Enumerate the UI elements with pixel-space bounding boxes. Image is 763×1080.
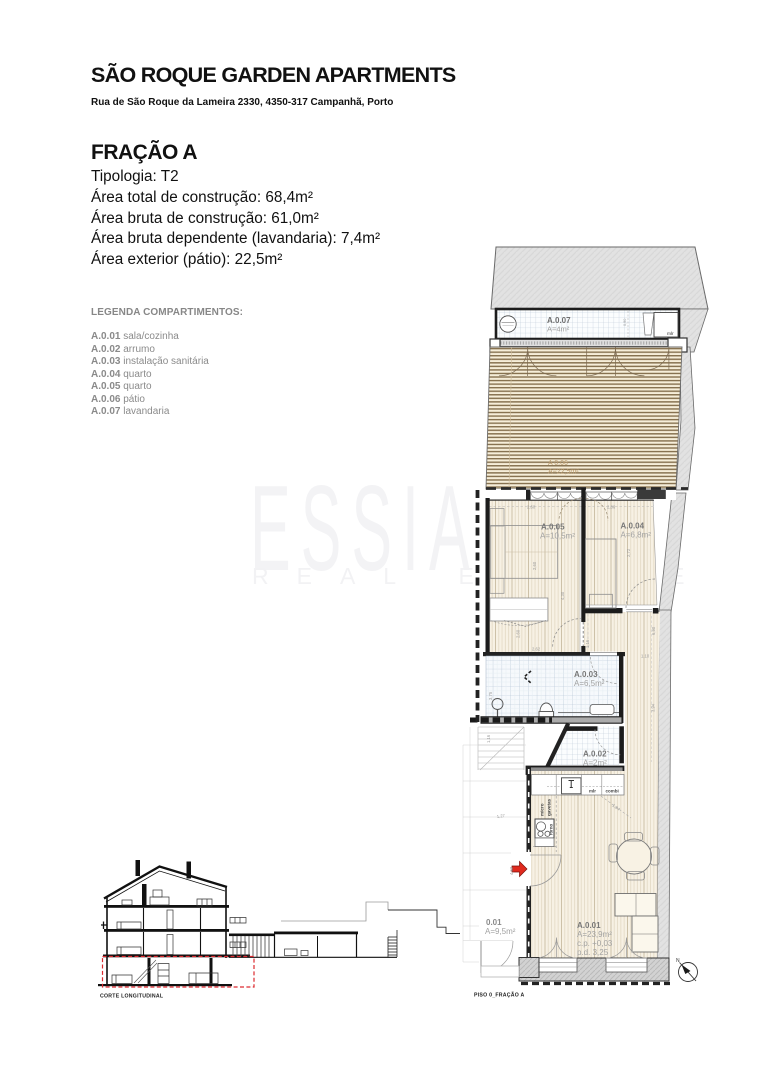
- svg-text:A.0.01: A.0.01: [577, 921, 601, 930]
- svg-text:forno: forno: [549, 823, 554, 835]
- svg-text:A=22,5m²: A=22,5m²: [548, 469, 579, 476]
- svg-text:micro: micro: [540, 803, 545, 816]
- svg-text:A.0.03: A.0.03: [574, 670, 598, 679]
- svg-text:A.0.05: A.0.05: [541, 523, 565, 532]
- svg-text:gavetas: gavetas: [547, 798, 552, 816]
- svg-text:A=10,5m²: A=10,5m²: [540, 532, 575, 541]
- svg-text:4,30: 4,30: [560, 591, 565, 600]
- svg-text:A=2m²: A=2m²: [583, 759, 607, 768]
- svg-text:mlr: mlr: [667, 331, 674, 337]
- svg-text:A.0.04: A.0.04: [621, 522, 645, 531]
- svg-text:c.p. +0,03: c.p. +0,03: [577, 939, 613, 948]
- svg-text:A=4m²: A=4m²: [547, 325, 570, 334]
- svg-text:A.0.02: A.0.02: [583, 750, 607, 759]
- svg-text:0.01: 0.01: [486, 918, 502, 927]
- svg-text:4,52: 4,52: [509, 866, 514, 875]
- svg-text:mlr: mlr: [589, 788, 596, 793]
- svg-text:A=6,8m²: A=6,8m²: [621, 531, 652, 540]
- svg-text:p.d. 3,25: p.d. 3,25: [577, 948, 609, 957]
- svg-text:3,75: 3,75: [488, 691, 493, 700]
- svg-text:1,10: 1,10: [641, 654, 650, 659]
- svg-text:A=6,5m²: A=6,5m²: [574, 679, 605, 688]
- svg-text:2,60: 2,60: [532, 561, 537, 570]
- svg-text:2,62: 2,62: [532, 647, 541, 652]
- svg-text:2,60: 2,60: [516, 629, 521, 638]
- svg-text:CORTE LONGITUDINAL: CORTE LONGITUDINAL: [100, 994, 164, 1000]
- svg-text:1,27: 1,27: [496, 813, 505, 819]
- svg-text:A=9,5m²: A=9,5m²: [485, 927, 516, 936]
- svg-text:0,90: 0,90: [623, 319, 627, 326]
- svg-text:2,72: 2,72: [626, 548, 631, 557]
- svg-text:6,90: 6,90: [651, 626, 656, 635]
- svg-text:3,94: 3,94: [651, 703, 656, 712]
- svg-text:PISO 0_FRAÇÃO A: PISO 0_FRAÇÃO A: [474, 992, 525, 999]
- svg-text:1,16: 1,16: [486, 734, 491, 743]
- svg-text:1,16: 1,16: [585, 639, 590, 648]
- svg-text:2,60: 2,60: [527, 505, 536, 510]
- svg-text:combi: combi: [606, 788, 619, 793]
- svg-text:N: N: [676, 958, 680, 964]
- svg-text:A=23,9m²: A=23,9m²: [577, 930, 612, 939]
- svg-text:2,86: 2,86: [607, 505, 616, 510]
- svg-text:A 0.06: A 0.06: [548, 460, 568, 467]
